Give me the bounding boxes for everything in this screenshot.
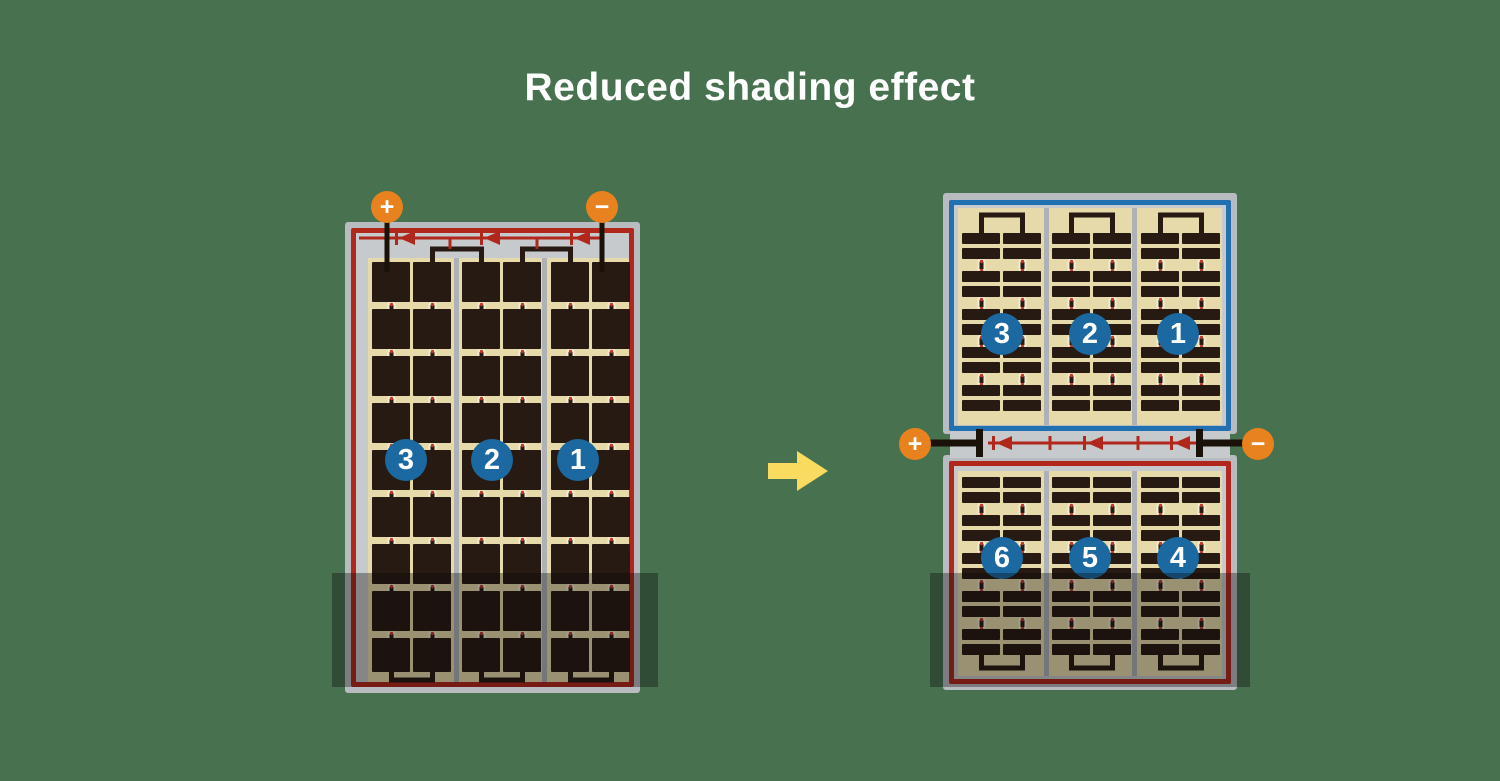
string-badge: 1 xyxy=(1157,313,1199,355)
plus-terminal-icon: + xyxy=(371,191,403,223)
string-badge: 1 xyxy=(557,439,599,481)
string-badge: 2 xyxy=(1069,313,1111,355)
circuit-graphics xyxy=(0,0,1500,781)
diagram-canvas: Reduced shading effect + − 3 2 1 3 2 1 6… xyxy=(0,0,1500,781)
string-badge: 3 xyxy=(981,313,1023,355)
arrow-right-icon xyxy=(768,446,830,496)
minus-terminal-icon: − xyxy=(1242,428,1274,460)
shading-overlay-right xyxy=(930,573,1250,687)
string-badge: 2 xyxy=(471,439,513,481)
plus-terminal-icon: + xyxy=(899,428,931,460)
shading-overlay-left xyxy=(332,573,658,687)
string-badge: 3 xyxy=(385,439,427,481)
minus-terminal-icon: − xyxy=(586,191,618,223)
